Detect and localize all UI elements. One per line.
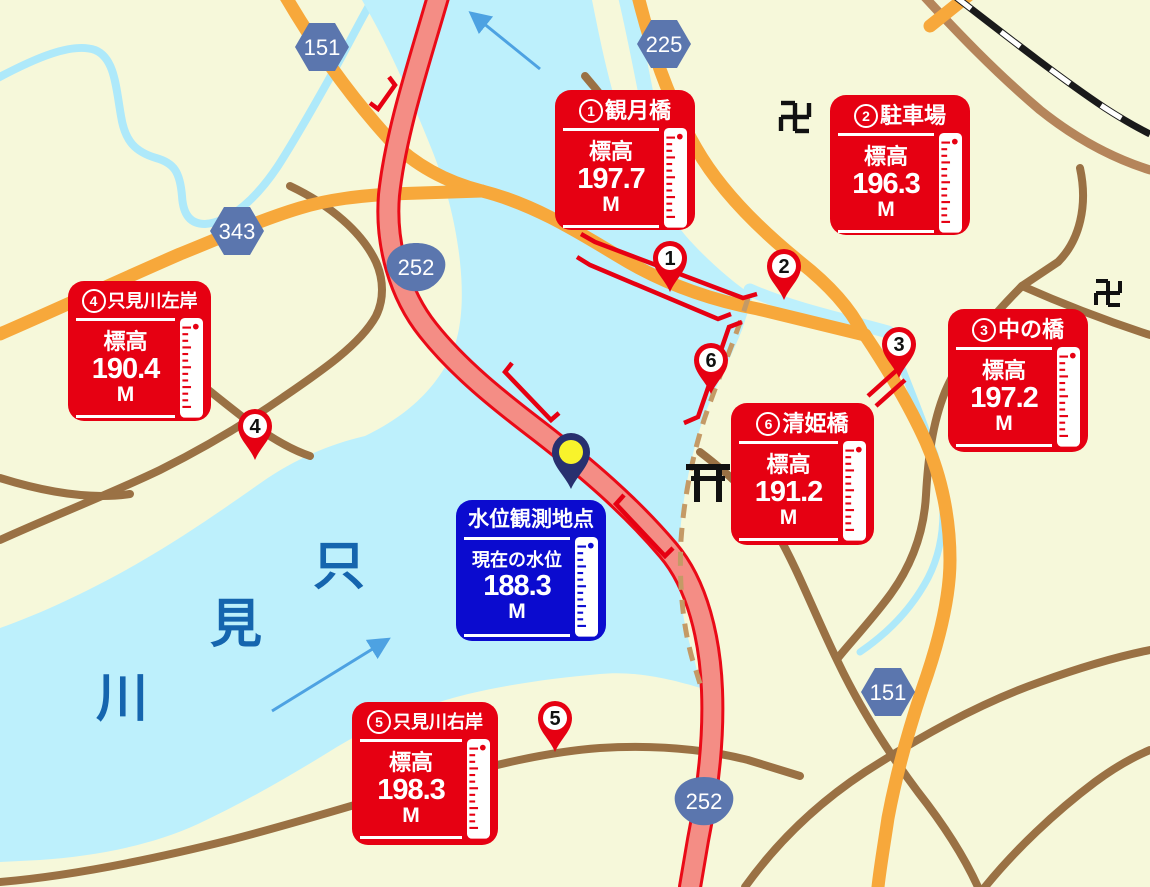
elevation-unit: M [956,415,1052,434]
svg-text:252: 252 [686,789,723,814]
shrine-torii-icon [686,464,730,502]
svg-text:2: 2 [778,256,789,278]
station-box-3: 3 中の橋 標高 197.2 M [948,309,1088,452]
elevation-unit: M [360,807,462,826]
ruler-icon [180,318,203,418]
water-level-unit: M [464,603,570,622]
svg-text:151: 151 [304,35,341,60]
svg-text:4: 4 [249,416,261,438]
route-shield-151-bottom: 151 [861,668,915,716]
station-name: 只見川左岸 [108,291,198,312]
station-name: 中の橋 [998,317,1064,342]
station-title: 3 中の橋 [956,317,1080,342]
ruler-icon [575,537,598,637]
road [745,650,1150,887]
temple-manji-icon [1096,281,1120,305]
station-title: 4 只見川左岸 [76,289,203,313]
route-shield-343: 343 [210,207,264,255]
ruler-icon [843,441,866,541]
station-box-2: 2 駐車場 標高 196.3 M [830,95,970,235]
elevation-value: 197.2 [956,383,1052,415]
water-level-label: 現在の水位 [464,551,570,571]
elevation-value: 196.3 [838,169,934,201]
elevation-label: 標高 [838,145,934,169]
svg-text:3: 3 [893,334,904,356]
map-pin-4[interactable]: 4 [238,409,272,460]
temple-manji-icon [781,103,809,131]
svg-text:252: 252 [398,255,435,280]
elevation-value: 191.2 [739,477,838,509]
station-number-badge: 1 [579,99,603,123]
station-title: 1 観月橋 [563,98,687,123]
station-number-badge: 2 [854,104,878,128]
station-number-badge: 3 [972,318,996,342]
bridge-mark-stream [370,77,395,109]
water-level-value: 188.3 [464,571,570,603]
station-title: 2 駐車場 [838,103,962,128]
observation-title: 水位観測地点 [464,508,598,532]
station-title: 5 只見川右岸 [360,710,490,734]
svg-text:1: 1 [664,248,675,270]
station-name: 観月橋 [605,98,671,123]
station-name: 清姫橋 [782,411,848,436]
water-level-map: 只 見 川 151 225 343 252 252 [0,0,1150,887]
map-pin-5[interactable]: 5 [538,701,572,752]
svg-text:151: 151 [870,680,907,705]
station-number-badge: 4 [82,289,106,313]
observation-box: 水位観測地点 現在の水位 188.3 M [456,500,606,641]
river-name-char: 川 [96,670,148,728]
elevation-label: 標高 [739,453,838,477]
elevation-unit: M [76,386,175,405]
ruler-icon [939,133,962,233]
station-box-1: 1 観月橋 標高 197.7 M [555,90,695,230]
elevation-unit: M [739,509,838,528]
station-name: 駐車場 [880,103,946,128]
road [0,478,130,496]
svg-text:5: 5 [549,708,560,730]
svg-text:6: 6 [705,350,716,372]
station-box-5: 5 只見川右岸 標高 198.3 M [352,702,498,845]
elevation-value: 197.7 [563,164,659,196]
route-shield-252-lower: 252 [675,777,734,825]
ruler-icon [1057,347,1080,447]
ruler-icon [467,739,490,839]
station-number-badge: 5 [367,710,391,734]
elevation-value: 190.4 [76,354,175,386]
elevation-value: 198.3 [360,775,462,807]
station-name: 只見川右岸 [393,712,483,733]
elevation-unit: M [563,196,659,215]
elevation-unit: M [838,201,934,220]
station-box-4: 4 只見川左岸 標高 190.4 M [68,281,211,421]
station-title: 6 清姫橋 [739,411,866,436]
elevation-label: 標高 [563,140,659,164]
station-box-6: 6 清姫橋 標高 191.2 M [731,403,874,545]
ruler-icon [664,128,687,228]
station-number-badge: 6 [756,412,780,436]
svg-text:343: 343 [219,219,256,244]
svg-text:225: 225 [646,32,683,57]
elevation-label: 標高 [360,751,462,775]
elevation-label: 標高 [956,359,1052,383]
river-name-char: 見 [210,596,262,654]
elevation-label: 標高 [76,330,175,354]
road [985,750,1150,887]
road [1022,168,1083,286]
river-name-char: 只 [313,538,365,596]
